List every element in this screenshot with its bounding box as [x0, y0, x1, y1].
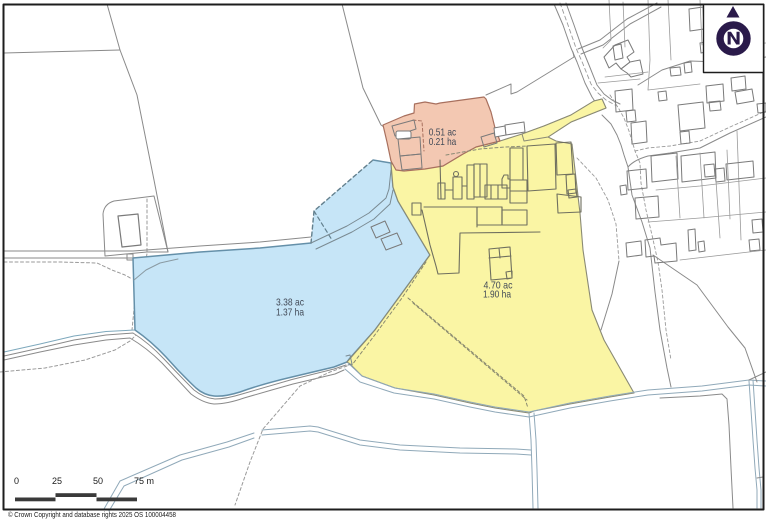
svg-text:25: 25: [52, 476, 62, 486]
svg-text:© Crown Copyright and database: © Crown Copyright and database rights 20…: [8, 510, 176, 519]
svg-text:0.21 ha: 0.21 ha: [429, 137, 457, 148]
svg-text:0: 0: [14, 476, 19, 486]
svg-text:1.37 ha: 1.37 ha: [276, 308, 304, 319]
svg-text:1.90 ha: 1.90 ha: [483, 290, 511, 301]
svg-text:50: 50: [93, 476, 103, 486]
svg-text:75 m: 75 m: [134, 476, 154, 486]
